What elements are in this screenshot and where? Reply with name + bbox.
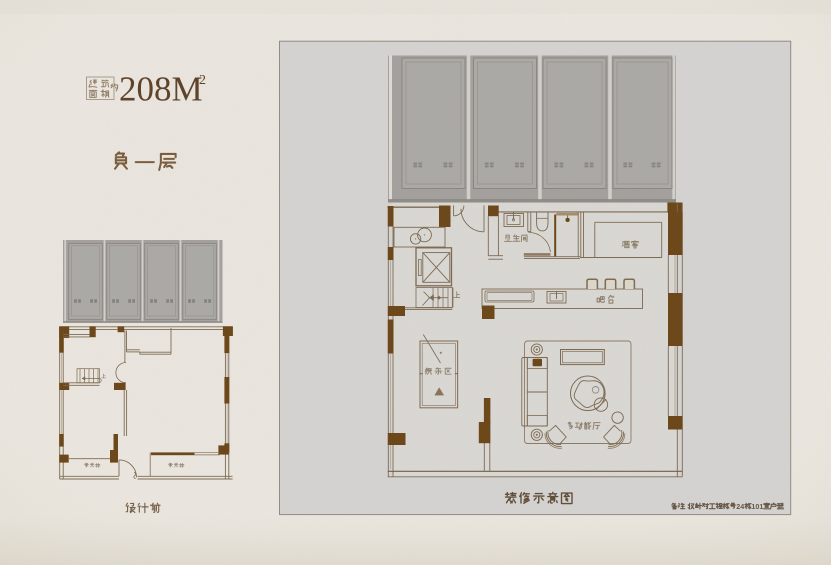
svg-text:208M: 208M — [119, 70, 203, 109]
svg-text:2: 2 — [199, 73, 206, 88]
svg-text:24: 24 — [736, 502, 744, 511]
svg-text:101: 101 — [751, 502, 763, 511]
